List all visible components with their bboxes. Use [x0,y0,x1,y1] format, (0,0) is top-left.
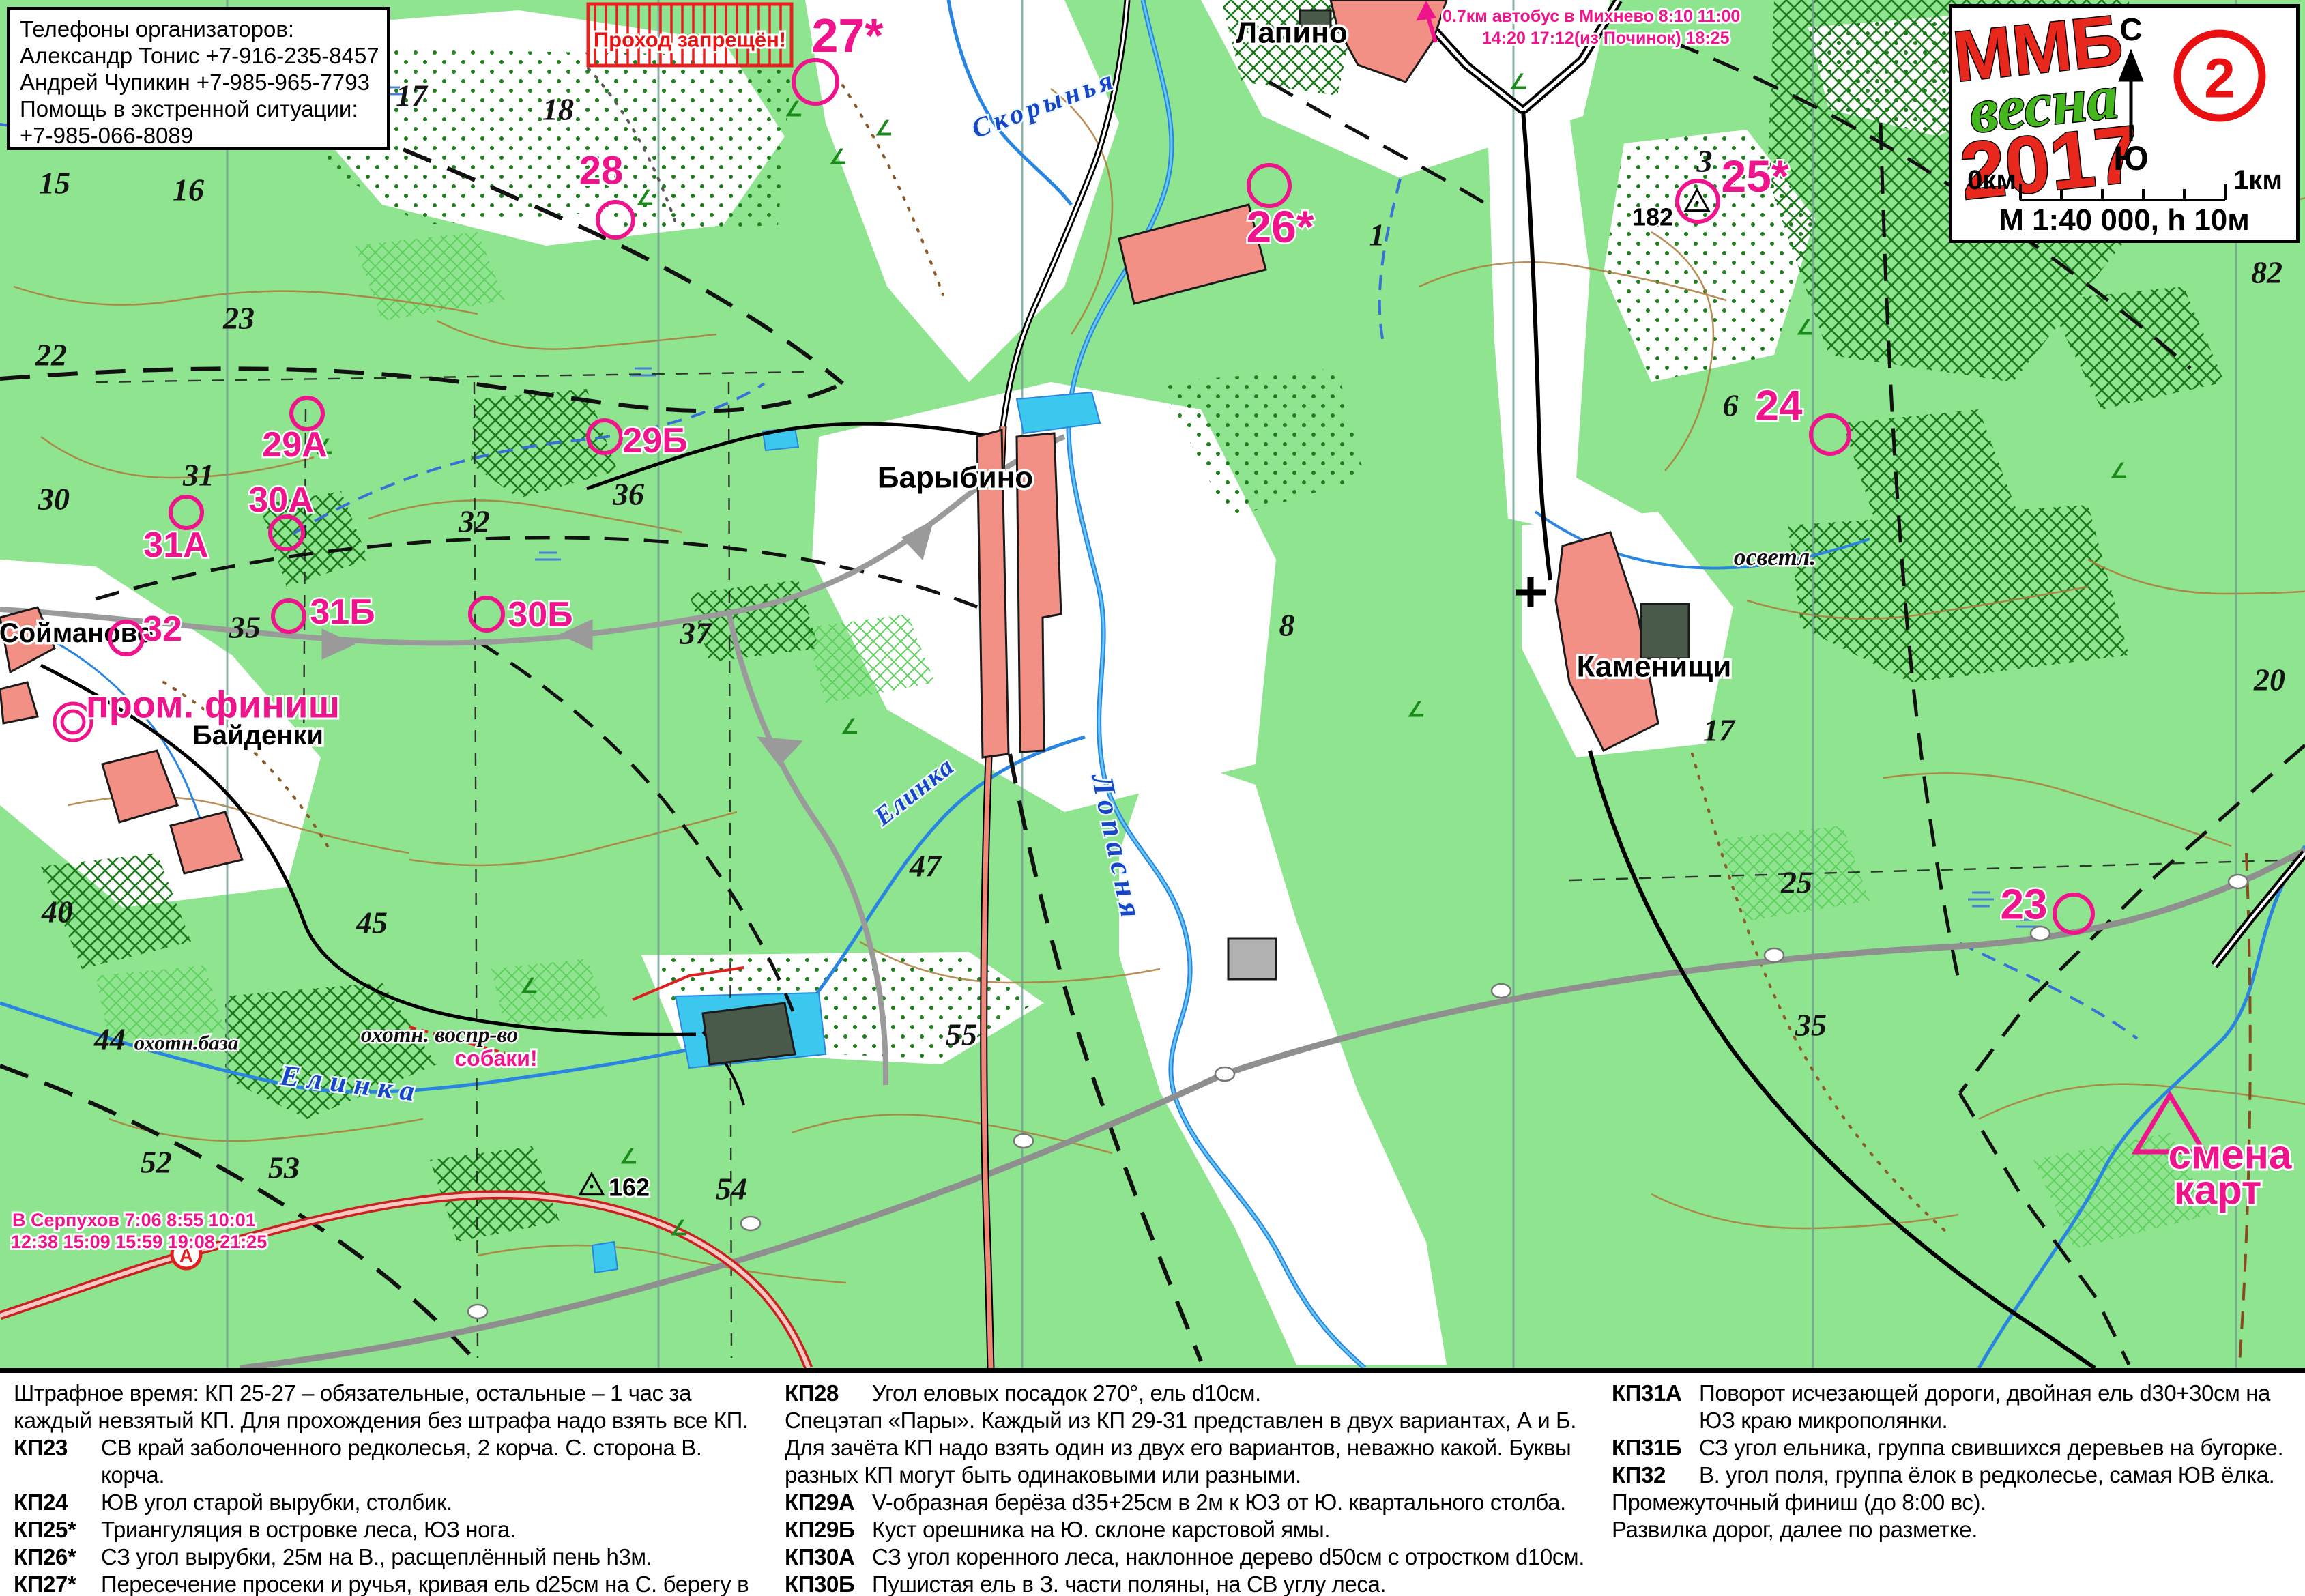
control-label-29А: 29А [262,425,327,465]
legend-entry-КП25*: КП25*Триангуляция в островке леса, ЮЗ но… [14,1516,768,1543]
legend-paragraph: Промежуточный финиш (до 8:00 вс). [1612,1489,2294,1516]
scanned-orienteering-map: ∠∠∠ ∠∠∠ ∠∠∠ ∠∠∠ ∠∠ А 1516171822233031323… [0,0,2305,1596]
control-label-32: 32 [143,609,182,649]
legend-entry-КП29А: КП29АV-образная берёза d35+25см в 2м к Ю… [785,1489,1597,1516]
svg-text:∠: ∠ [1509,71,1528,93]
kp-code: КП26* [14,1543,101,1571]
legend-paragraph: Спецэтап «Пары». Каждый из КП 29-31 пред… [785,1407,1597,1489]
place-name: Лапино [1236,16,1348,50]
kp-code: КП28 [785,1380,872,1407]
kp-description: Пересечение просеки и ручья, кривая ель … [101,1571,768,1596]
kp-description: СЗ угол коренного леса, наклонное дерево… [872,1543,1597,1571]
kp-description: Пушистая ель в З. части поляны, на СВ уг… [872,1571,1597,1596]
kp-description: Штрафное время: КП 25-27 – обязательные,… [14,1380,768,1434]
control-label-26*: 26* [1246,201,1314,252]
legend-entry-КП26*: КП26*СЗ угол вырубки, 25м на В., расщепл… [14,1543,768,1571]
svg-text:∠: ∠ [620,1146,638,1168]
svg-text:∠: ∠ [785,98,803,121]
triangulation-dot [1695,201,1698,204]
svg-text:∠: ∠ [2110,460,2128,482]
svg-text:∠: ∠ [829,146,847,169]
map-note: карт [2174,1167,2262,1213]
legend-paragraph: Штрафное время: КП 25-27 – обязательные,… [14,1380,768,1434]
kp-description: Спецэтап «Пары». Каждый из КП 29-31 пред… [785,1407,1597,1489]
svg-text:∠: ∠ [1407,699,1425,721]
kp-description: Триангуляция в островке леса, ЮЗ нога. [101,1516,768,1543]
quadrant-number: 54 [716,1172,747,1206]
info-help-phone: +7-985-066-8089 [20,122,377,149]
quadrant-number: 35 [229,610,261,645]
kp-code: КП27* [14,1571,101,1596]
quadrant-number: 18 [542,92,574,127]
kp-code: КП29А [785,1489,872,1516]
info-phone-1: Александр Тонис +7-916-235-8457 [20,42,377,69]
building-grey [1228,938,1276,979]
terrain-label: охотн. воспр-во [361,1023,519,1047]
quadrant-number: 55 [946,1017,977,1052]
quadrant-number: 40 [41,895,73,929]
quadrant-number: 36 [612,477,644,512]
quadrant-number: 25 [1780,865,1812,900]
map-note: В Серпухов 7:06 8:55 10:01 [12,1210,256,1230]
scale-text: М 1:40 000, h 10м [1999,203,2250,237]
legend-paragraph: Развилка дорог, далее по разметке. [1612,1516,2294,1543]
info-phone-2: Андрей Чупикин +7-985-965-7793 [20,69,377,96]
control-label-31Б: 31Б [310,592,375,632]
quadrant-number: 17 [396,78,429,113]
control-label-31А: 31А [143,525,208,565]
kp-code: КП29Б [785,1516,872,1543]
kp-description: V-образная берёза d35+25см в 2м к ЮЗ от … [872,1489,1597,1516]
legend-panel: Штрафное время: КП 25-27 – обязательные,… [0,1368,2305,1596]
kp-description: Куст орешника на Ю. склоне карстовой ямы… [872,1516,1597,1543]
quadrant-number: 37 [679,616,712,651]
kp-description: СВ край заболоченного редколесья, 2 корч… [101,1434,768,1489]
quadrant-number: 45 [356,905,388,940]
quadrant-number: 15 [39,166,70,201]
control-label-23: 23 [2001,882,2048,929]
event-logo-box: ММБ 2017 весна С Ю 2 0км 1км М 1:40 000,… [1949,4,2300,243]
svg-text:∠: ∠ [841,716,859,738]
legend-entry-КП31Б: КП31БСЗ угол ельника, группа свившихся д… [1612,1434,2294,1462]
map-note: 0.7км автобус в Михнево 8:10 11:00 [1443,7,1740,26]
kp-code: КП31А [1612,1380,1699,1434]
height-label: 162 [609,1174,650,1202]
quadrant-number: 23 [222,301,255,336]
compass-north-label: С [2119,12,2142,47]
quadrant-number: 16 [173,173,204,207]
kp-description: СЗ угол ельника, группа свившихся деревь… [1699,1434,2294,1462]
kp-description: СЗ угол вырубки, 25м на В., расщеплённый… [101,1543,768,1571]
compass-south-label: Ю [2113,139,2149,177]
quadrant-number: 22 [35,338,67,373]
kp-code: КП30А [785,1543,872,1571]
legend-entry-КП23: КП23СВ край заболоченного редколесья, 2 … [14,1434,768,1489]
organizer-info-box: Телефоны организаторов: Александр Тонис … [7,7,390,150]
legend-column-1: Штрафное время: КП 25-27 – обязательные,… [14,1380,768,1596]
control-label-28: 28 [579,149,624,193]
quadrant-number: 44 [93,1022,126,1057]
legend-entry-КП32: КП32В. угол поля, группа ёлок в редколес… [1612,1462,2294,1489]
quadrant-number: 53 [268,1150,300,1185]
quadrant-number: 52 [141,1145,172,1180]
kp-description: Поворот исчезающей дороги, двойная ель d… [1699,1380,2294,1434]
kp-description: Развилка дорог, далее по разметке. [1612,1516,2294,1543]
kp-code: КП31Б [1612,1434,1699,1462]
terrain-label: охотн.база [134,1031,239,1055]
map-note: 14:20 17:12(из Починок) 18:25 [1482,29,1730,48]
map-number: 2 [2204,48,2235,110]
quadrant-number: 8 [1279,608,1295,643]
legend-column-2: КП28Угол еловых посадок 270°, ель d10см.… [785,1380,1597,1596]
svg-text:∠: ∠ [636,187,654,209]
map-note: 12:38 15:09 15:59 19:08 21:25 [11,1232,267,1252]
triangulation-dot [590,1185,593,1188]
quadrant-number: 17 [1703,713,1736,748]
map-note: собаки! [454,1046,537,1071]
kp-description: Промежуточный финиш (до 8:00 вс). [1612,1489,2294,1516]
legend-entry-КП29Б: КП29БКуст орешника на Ю. склоне карстово… [785,1516,1597,1543]
legend-entry-КП28: КП28Угол еловых посадок 270°, ель d10см. [785,1380,1597,1407]
control-label-24: 24 [1756,383,1803,430]
svg-text:∠: ∠ [1796,317,1814,339]
kp-code: КП24 [14,1489,101,1516]
control-label-29Б: 29Б [622,421,687,461]
pond-near-road [592,1242,618,1273]
scale-zero-label: 0км [1967,165,2016,195]
quadrant-number: 20 [2253,663,2285,697]
legend-entry-КП27*: КП27*Пересечение просеки и ручья, кривая… [14,1571,768,1596]
kp-code: КП32 [1612,1462,1699,1489]
svg-text:∠: ∠ [520,975,538,998]
control-label-27*: 27* [811,9,884,62]
svg-text:∠: ∠ [670,1217,688,1240]
map-note: Проход запрещён! [594,28,786,52]
legend-entry-КП24: КП24ЮВ угол старой вырубки, столбик. [14,1489,768,1516]
control-label-30А: 30А [248,480,313,520]
quadrant-number: 6 [1723,388,1739,423]
control-label-30Б: 30Б [508,595,572,635]
kp-code: КП25* [14,1516,101,1543]
scale-km-label: 1км [2233,165,2282,195]
legend-entry-КП30Б: КП30БПушистая ель в З. части поляны, на … [785,1571,1597,1596]
map-note: пром. финиш [86,683,340,726]
height-label: 182 [1632,203,1673,231]
quadrant-number: 1 [1369,218,1385,252]
place-name: Каменищи [1577,650,1732,684]
kp-description: ЮВ угол старой вырубки, столбик. [101,1489,768,1516]
info-help-label: Помощь в экстренной ситуации: [20,96,377,122]
place-name: Барыбино [878,461,1033,495]
control-label-25*: 25* [1721,151,1788,201]
building-hunting-base [703,1003,795,1064]
quadrant-number: 30 [38,482,70,517]
legend-column-3: КП31АПоворот исчезающей дороги, двойная … [1612,1380,2294,1543]
kp-code: КП23 [14,1434,101,1489]
logo-canvas: ММБ 2017 весна С Ю 2 0км 1км М 1:40 000,… [1952,8,2296,240]
quadrant-number: 35 [1795,1008,1827,1043]
quadrant-number: 3 [1696,144,1713,179]
terrain-label: осветл. [1734,543,1816,570]
legend-entry-КП31А: КП31АПоворот исчезающей дороги, двойная … [1612,1380,2294,1434]
kp-code: КП30Б [785,1571,872,1596]
legend-entry-КП30А: КП30АСЗ угол коренного леса, наклонное д… [785,1543,1597,1571]
quadrant-number: 31 [182,458,214,493]
quadrant-number: 32 [458,504,490,539]
quadrant-number: 82 [2251,255,2282,290]
kp-description: В. угол поля, группа ёлок в редколесье, … [1699,1462,2294,1489]
kp-description: Угол еловых посадок 270°, ель d10см. [872,1380,1597,1407]
svg-text:∠: ∠ [875,117,893,140]
info-title: Телефоны организаторов: [20,16,377,42]
quadrant-number: 47 [909,849,942,884]
